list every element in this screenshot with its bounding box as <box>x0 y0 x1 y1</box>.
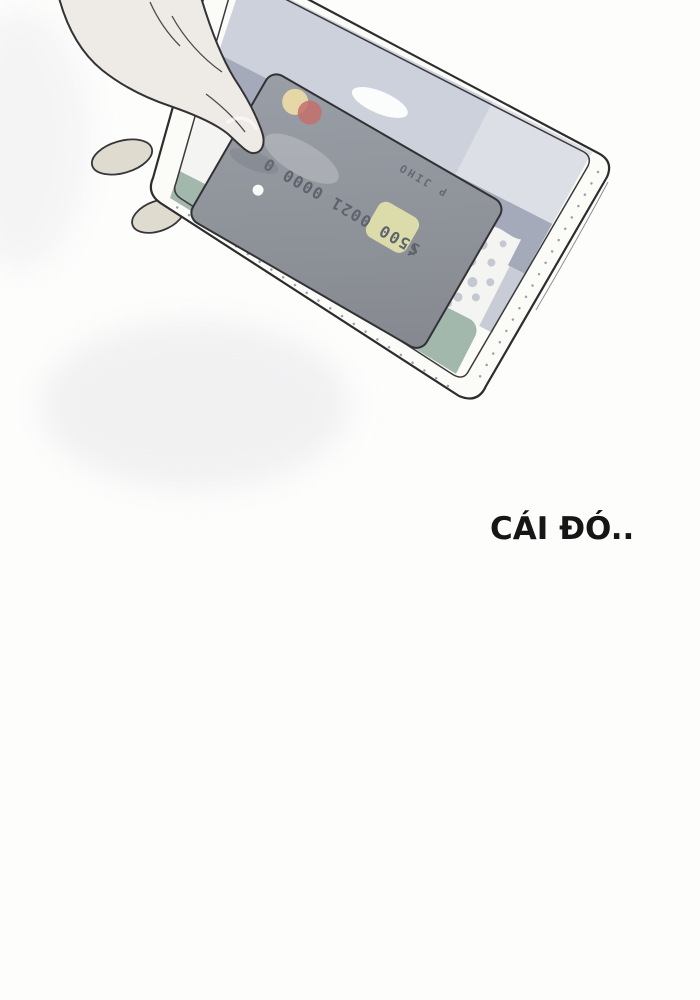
dialogue-text: CÁI ĐÓ.. <box>490 511 690 547</box>
fingertip-1 <box>88 133 156 181</box>
comic-panel: 5500 0021 0000 0 P JIHO CÁI ĐÓ.. <box>0 0 700 1000</box>
background-shadow <box>40 320 350 490</box>
illustration: 5500 0021 0000 0 P JIHO <box>0 0 700 1000</box>
background-shadow-left <box>0 10 90 270</box>
